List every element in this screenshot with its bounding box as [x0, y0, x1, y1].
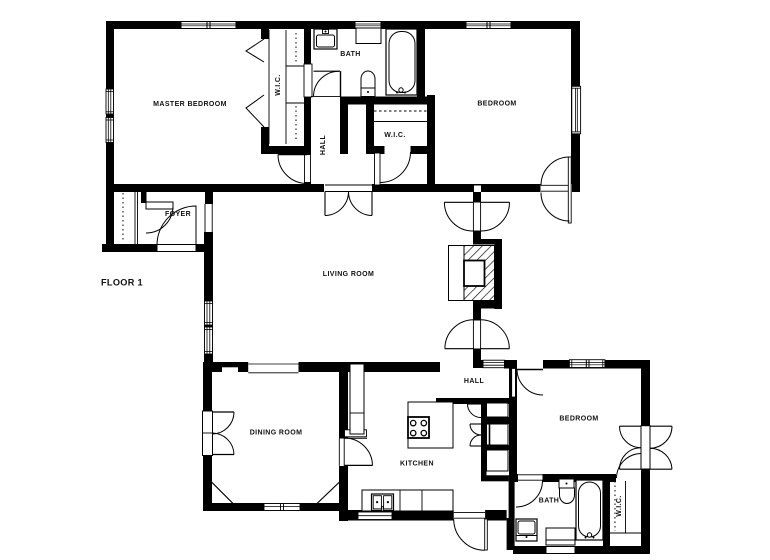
- svg-text:KITCHEN: KITCHEN: [400, 461, 434, 468]
- svg-text:BATH: BATH: [340, 51, 361, 58]
- svg-text:FOYER: FOYER: [165, 211, 191, 218]
- svg-text:BEDROOM: BEDROOM: [559, 416, 598, 423]
- svg-text:LIVING ROOM: LIVING ROOM: [323, 271, 374, 278]
- svg-text:DINING ROOM: DINING ROOM: [250, 430, 303, 437]
- svg-text:HALL: HALL: [320, 135, 327, 156]
- svg-text:MASTER BEDROOM: MASTER BEDROOM: [153, 101, 227, 108]
- svg-text:W.I.C.: W.I.C.: [384, 132, 405, 139]
- svg-text:BATH: BATH: [539, 498, 560, 505]
- svg-text:FLOOR 1: FLOOR 1: [101, 278, 143, 288]
- svg-text:BEDROOM: BEDROOM: [477, 101, 516, 108]
- svg-text:HALL: HALL: [464, 378, 485, 385]
- svg-text:W.I.C.: W.I.C.: [616, 495, 623, 516]
- svg-text:W.I.C.: W.I.C.: [275, 74, 282, 95]
